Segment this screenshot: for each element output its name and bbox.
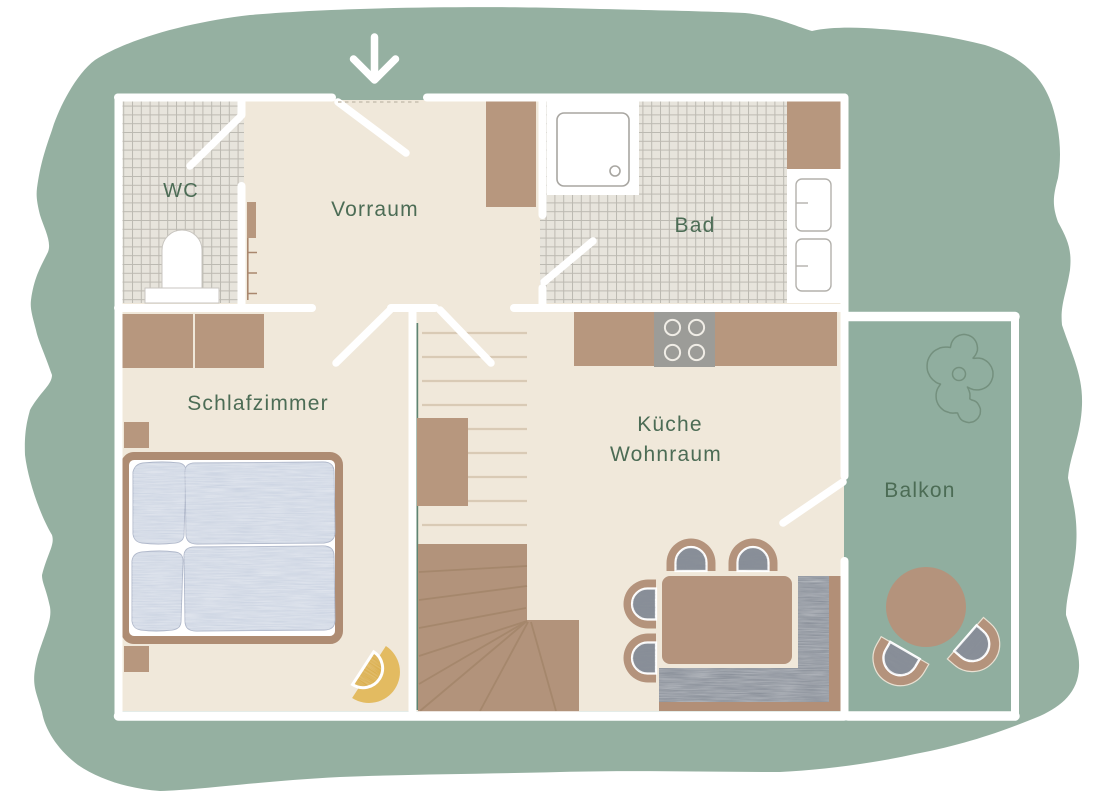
svg-text:Wohnraum: Wohnraum xyxy=(610,443,722,466)
svg-text:Balkon: Balkon xyxy=(884,479,955,502)
svg-text:WC: WC xyxy=(163,180,199,202)
svg-text:Küche: Küche xyxy=(637,413,703,436)
svg-text:Bad: Bad xyxy=(675,214,716,237)
svg-text:Schlafzimmer: Schlafzimmer xyxy=(187,392,329,415)
svg-text:Vorraum: Vorraum xyxy=(331,198,419,221)
